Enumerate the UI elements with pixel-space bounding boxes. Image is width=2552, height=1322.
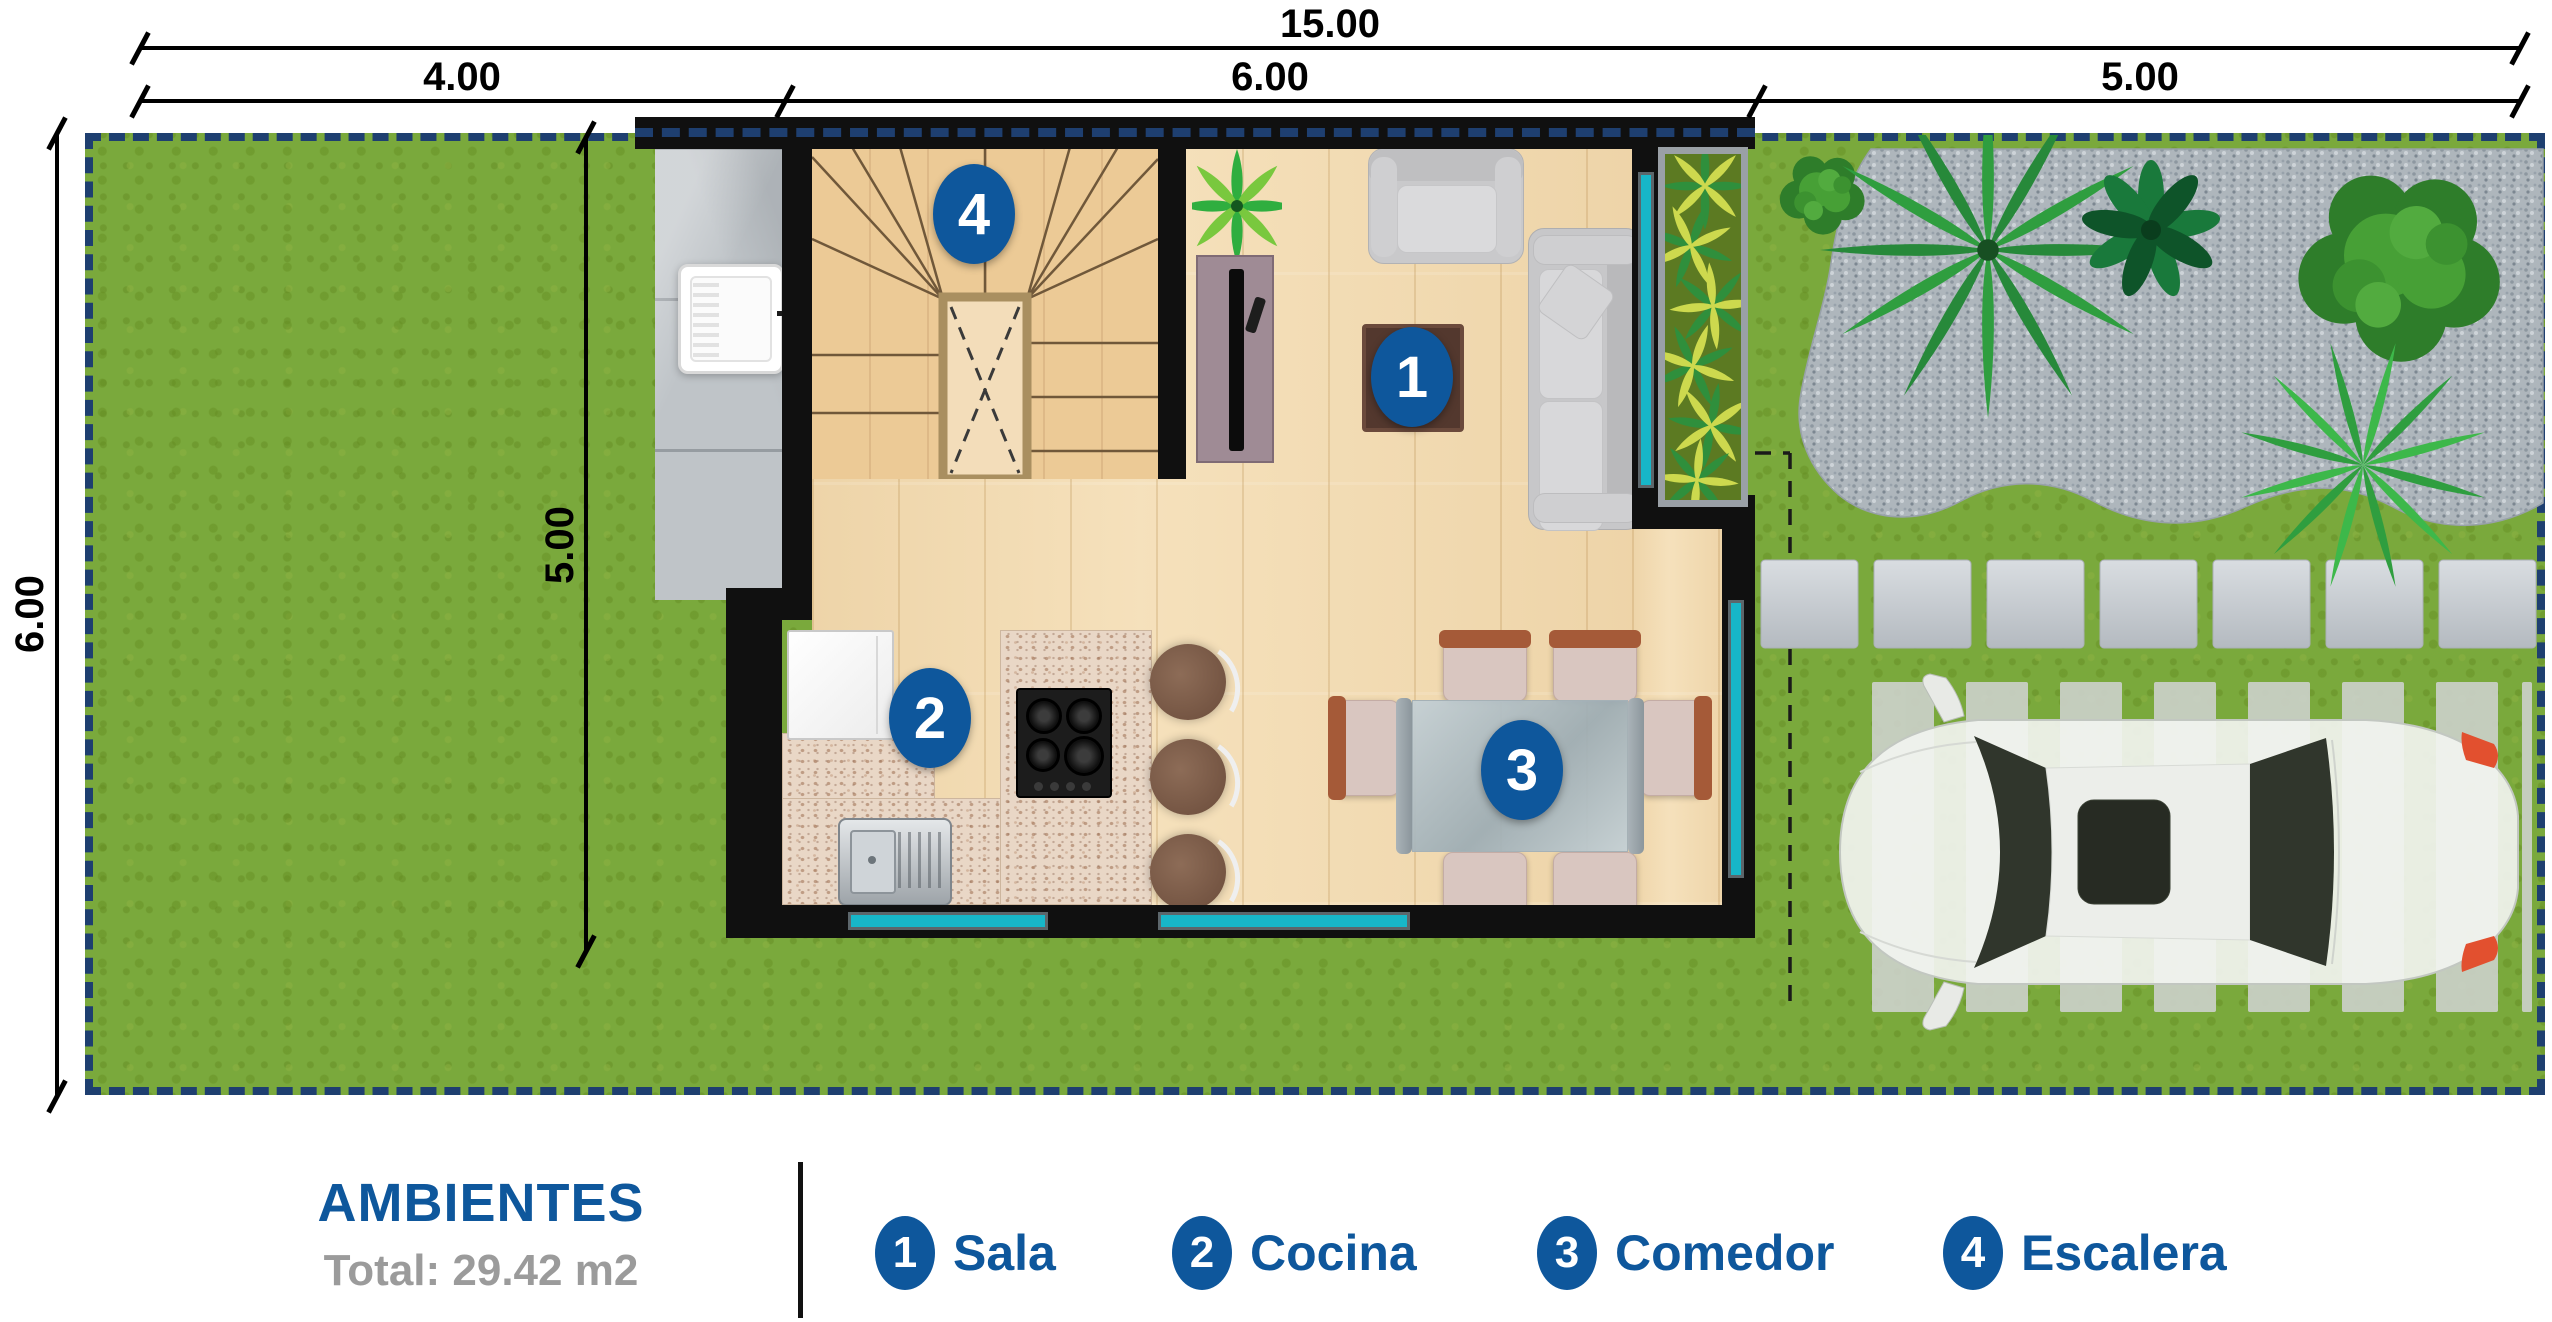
dining-chair <box>1640 700 1706 796</box>
refrigerator-door-seam <box>876 636 878 734</box>
chair-back <box>1694 696 1712 800</box>
chair-back <box>1439 630 1531 648</box>
cooktop-knob <box>1034 782 1043 791</box>
burner <box>1026 738 1060 772</box>
tv-console <box>1196 255 1274 463</box>
floor-plan-canvas: 1 2 3 4 15.00 4.00 6.00 5.00 6.00 5.00 A… <box>0 0 2552 1322</box>
window-dining-right <box>1728 600 1744 878</box>
refrigerator <box>787 630 894 740</box>
legend-marker-cocina: 2 <box>1172 1216 1232 1290</box>
legend-item-cocina: 2 Cocina <box>1172 1216 1417 1290</box>
chair-back <box>1328 696 1346 800</box>
legend-num: 3 <box>1555 1228 1579 1278</box>
stair-landing-frame <box>943 297 1027 479</box>
chair-back <box>1549 630 1641 648</box>
marker-cocina-number: 2 <box>914 685 946 752</box>
marker-sala: 1 <box>1371 327 1453 427</box>
burner <box>1064 736 1104 776</box>
cooktop-knob <box>1082 782 1091 791</box>
legend-label-comedor: Comedor <box>1615 1224 1834 1282</box>
marker-escalera: 4 <box>933 164 1015 264</box>
sofa-back <box>1607 237 1635 521</box>
window-sala <box>1638 172 1654 488</box>
window-kitchen <box>848 912 1048 930</box>
kitchen-sink-drainboard <box>898 832 942 888</box>
armchair-arm <box>1495 157 1521 257</box>
burner <box>1026 698 1062 734</box>
dining-chair <box>1334 700 1400 796</box>
legend-item-sala: 1 Sala <box>875 1216 1056 1290</box>
sofa <box>1528 228 1642 530</box>
window-dining-bottom <box>1158 912 1410 930</box>
marker-comedor-number: 3 <box>1506 737 1538 804</box>
kitchen-sink-drain <box>868 856 876 864</box>
armchair-seat <box>1397 185 1497 253</box>
laundry-sink-washboard <box>693 281 719 357</box>
car <box>1840 674 2518 1030</box>
cooktop-knob <box>1066 782 1075 791</box>
marker-cocina: 2 <box>889 668 971 768</box>
bar-stool <box>1150 834 1226 910</box>
dim-label-seg-left: 4.00 <box>362 55 562 100</box>
car-sunroof <box>2078 800 2170 904</box>
legend-marker-comedor: 3 <box>1537 1216 1597 1290</box>
sofa-armrest <box>1533 493 1639 523</box>
legend-label-escalera: Escalera <box>2021 1224 2227 1282</box>
sofa-armrest <box>1533 235 1639 265</box>
sala-plant <box>1192 148 1282 260</box>
cooktop <box>1016 688 1112 798</box>
legend-label-cocina: Cocina <box>1250 1224 1417 1282</box>
bar-stool <box>1150 739 1226 815</box>
marker-escalera-number: 4 <box>958 181 990 248</box>
tv <box>1229 269 1244 451</box>
bar-stool <box>1150 644 1226 720</box>
legend-title: AMBIENTES <box>231 1172 731 1234</box>
legend-marker-sala: 1 <box>875 1216 935 1290</box>
wall-left-lower <box>726 607 782 938</box>
boundary-dash-overlay <box>635 128 1755 137</box>
cooktop-knob <box>1050 782 1059 791</box>
kitchen-sink <box>838 818 952 906</box>
wall-left-upper <box>782 149 812 607</box>
legend-label-sala: Sala <box>953 1224 1056 1282</box>
dimension-line-lot-height <box>55 133 59 1096</box>
legend-num: 1 <box>893 1228 917 1278</box>
armchair <box>1368 148 1524 264</box>
legend-divider <box>798 1162 803 1318</box>
legend-num: 2 <box>1190 1228 1214 1278</box>
planter-plants <box>1665 154 1741 500</box>
dim-label-total-width: 15.00 <box>1230 2 1430 47</box>
legend-total: Total: 29.42 m2 <box>231 1246 731 1296</box>
dim-label-house-depth: 5.00 <box>538 485 578 605</box>
car-rear-window <box>2250 738 2334 966</box>
legend-item-escalera: 4 Escalera <box>1943 1216 2227 1290</box>
table-rail <box>1628 698 1644 854</box>
marker-comedor: 3 <box>1481 720 1563 820</box>
legend-num: 4 <box>1961 1228 1985 1278</box>
tv-remote <box>1245 296 1267 334</box>
legend-item-comedor: 3 Comedor <box>1537 1216 1834 1290</box>
dim-label-seg-mid: 6.00 <box>1170 55 1370 100</box>
dining-chair <box>1443 636 1527 702</box>
planter-strip <box>1658 147 1748 507</box>
armchair-arm <box>1371 157 1397 257</box>
dining-chair <box>1553 636 1637 702</box>
table-rail <box>1396 698 1412 854</box>
dim-label-seg-right: 5.00 <box>2040 55 2240 100</box>
dim-label-lot-height: 6.00 <box>8 554 48 674</box>
laundry-sink <box>678 264 784 374</box>
marker-sala-number: 1 <box>1396 344 1428 411</box>
driveway <box>1826 652 2552 1052</box>
wall-stair-right <box>1158 149 1186 479</box>
dimension-line-house-depth <box>584 137 588 951</box>
stepping-stones <box>1761 560 2536 648</box>
burner <box>1066 698 1102 734</box>
legend-marker-escalera: 4 <box>1943 1216 2003 1290</box>
